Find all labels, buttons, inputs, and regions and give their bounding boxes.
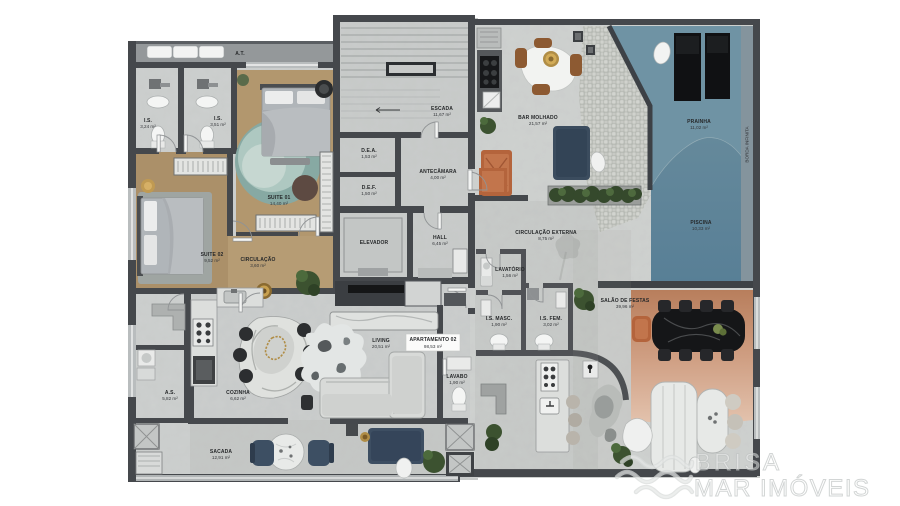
svg-text:BORDA INFINITA: BORDA INFINITA [745,125,750,162]
svg-text:3,60 m²: 3,60 m² [250,263,266,268]
svg-text:6,45 m²: 6,45 m² [432,241,448,246]
svg-text:11,67 m²: 11,67 m² [433,112,451,117]
svg-text:A.T.: A.T. [235,51,245,57]
svg-text:20,51 m²: 20,51 m² [372,344,391,349]
svg-text:1,56 m²: 1,56 m² [502,273,518,278]
svg-text:1,50 m²: 1,50 m² [361,191,377,196]
svg-text:3,24 m²: 3,24 m² [140,124,156,129]
svg-text:6,62 m²: 6,62 m² [230,396,246,401]
svg-text:11,02 m²: 11,02 m² [690,125,708,130]
svg-text:1,90 m²: 1,90 m² [491,322,507,327]
svg-text:ELEVADOR: ELEVADOR [360,240,389,246]
svg-text:5,82 m²: 5,82 m² [162,396,178,401]
svg-text:MAR IMÓVEIS: MAR IMÓVEIS [694,475,871,502]
svg-text:14,40 m²: 14,40 m² [270,201,289,206]
svg-text:LAVATÓRIO: LAVATÓRIO [495,265,525,273]
svg-text:ANTECÂMARA: ANTECÂMARA [419,168,457,175]
svg-text:1,90 m²: 1,90 m² [449,380,465,385]
svg-text:8,75 m²: 8,75 m² [538,236,554,241]
svg-text:10,33 m²: 10,33 m² [692,226,711,231]
svg-text:APARTAMENTO 02: APARTAMENTO 02 [409,337,456,343]
svg-text:3,51 m²: 3,51 m² [210,122,226,127]
svg-text:SALÃO DE FESTAS: SALÃO DE FESTAS [601,297,650,304]
svg-text:BRISA: BRISA [695,449,782,476]
svg-text:21,57 m²: 21,57 m² [529,121,548,126]
svg-text:CIRCULAÇÃO EXTERNA: CIRCULAÇÃO EXTERNA [515,229,577,236]
svg-text:CIRCULAÇÃO: CIRCULAÇÃO [240,256,275,263]
svg-text:9,52 m²: 9,52 m² [204,258,220,263]
svg-text:98,53 m²: 98,53 m² [424,344,443,349]
svg-text:3,02 m²: 3,02 m² [543,322,559,327]
svg-text:12,91 m²: 12,91 m² [212,455,231,460]
svg-text:1,53 m²: 1,53 m² [361,154,377,159]
svg-text:4,00 m²: 4,00 m² [430,175,446,180]
svg-text:39,96 m²: 39,96 m² [616,304,635,309]
